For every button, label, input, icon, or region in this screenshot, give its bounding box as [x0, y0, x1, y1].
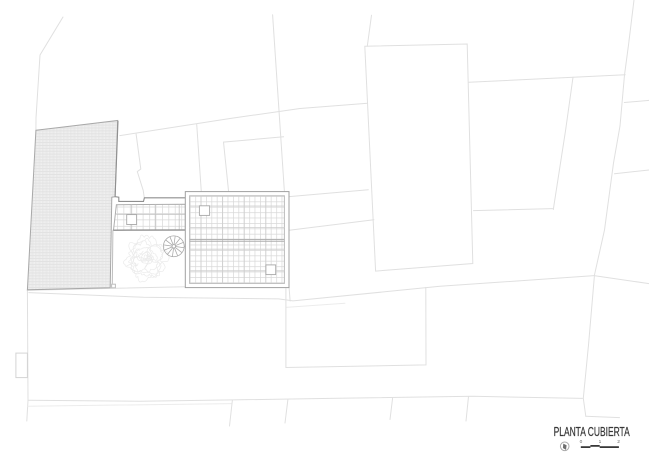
svg-text:2: 2	[617, 439, 620, 445]
svg-text:PLANTA CUBIERTA: PLANTA CUBIERTA	[554, 426, 631, 440]
svg-text:0: 0	[580, 439, 583, 445]
svg-text:1: 1	[599, 439, 602, 445]
